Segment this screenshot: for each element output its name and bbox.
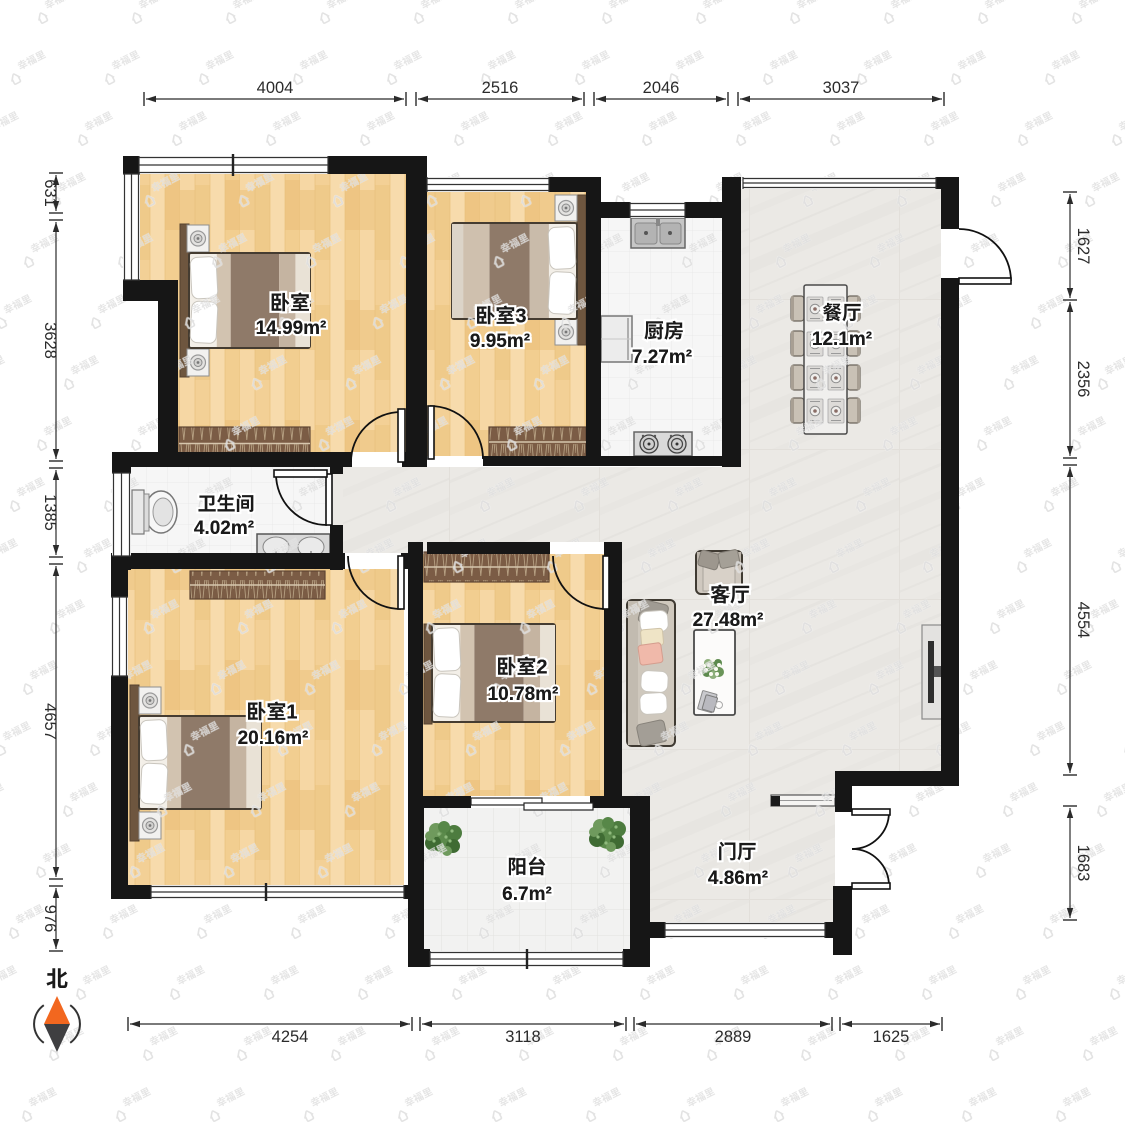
- svg-text:2046: 2046: [643, 79, 680, 97]
- svg-text:2516: 2516: [482, 79, 519, 97]
- svg-text:27.48m²: 27.48m²: [693, 610, 764, 631]
- svg-text:12.1m²: 12.1m²: [812, 329, 872, 350]
- svg-text:14.99m²: 14.99m²: [256, 318, 327, 339]
- svg-text:2356: 2356: [1074, 361, 1092, 398]
- svg-text:3628: 3628: [41, 322, 59, 359]
- svg-text:976: 976: [41, 905, 59, 933]
- svg-text:7.27m²: 7.27m²: [632, 347, 692, 368]
- svg-text:1683: 1683: [1074, 845, 1092, 882]
- svg-text:2889: 2889: [715, 1028, 752, 1046]
- svg-text:4554: 4554: [1074, 602, 1092, 639]
- svg-text:6.7m²: 6.7m²: [502, 884, 552, 905]
- svg-text:3118: 3118: [505, 1028, 540, 1046]
- svg-text:4.86m²: 4.86m²: [708, 868, 768, 889]
- svg-text:1625: 1625: [873, 1028, 910, 1046]
- svg-text:3037: 3037: [823, 79, 860, 97]
- svg-text:4254: 4254: [272, 1028, 309, 1046]
- svg-text:10.78m²: 10.78m²: [488, 684, 559, 705]
- svg-text:3: 3: [515, 306, 526, 328]
- svg-text:2: 2: [536, 657, 547, 679]
- svg-text:1385: 1385: [41, 494, 59, 531]
- svg-text:20.16m²: 20.16m²: [238, 728, 309, 749]
- svg-text:631: 631: [41, 179, 59, 207]
- svg-text:4.02m²: 4.02m²: [194, 518, 254, 539]
- svg-text:1: 1: [286, 702, 297, 724]
- svg-text:9.95m²: 9.95m²: [470, 331, 530, 352]
- svg-text:4004: 4004: [257, 79, 294, 97]
- svg-text:4657: 4657: [41, 703, 59, 740]
- svg-text:1627: 1627: [1074, 228, 1092, 265]
